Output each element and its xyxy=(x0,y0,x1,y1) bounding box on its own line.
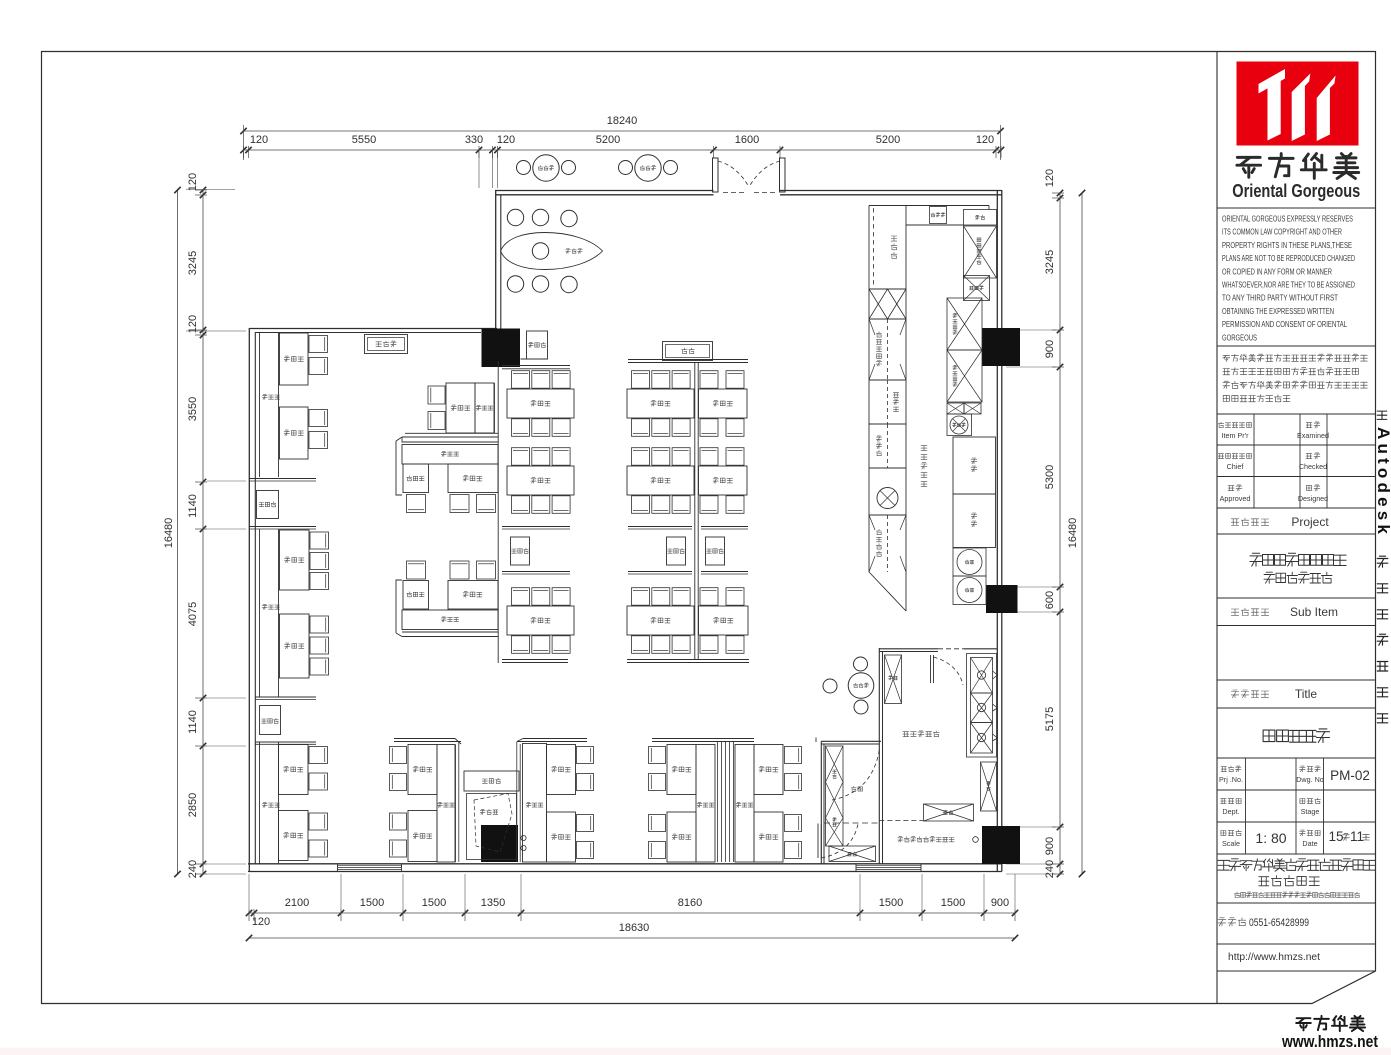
svg-text:GORGEOUS: GORGEOUS xyxy=(1222,333,1257,342)
svg-text:Sub Item: Sub Item xyxy=(1290,605,1338,619)
svg-text:Prj .No.: Prj .No. xyxy=(1219,775,1243,784)
svg-text:Scale: Scale xyxy=(1222,839,1240,848)
svg-text:11: 11 xyxy=(1350,829,1364,844)
svg-text:Stage: Stage xyxy=(1301,807,1320,816)
svg-text:OR COPIED IN ANY FORM OR MANNE: OR COPIED IN ANY FORM OR MANNER xyxy=(1222,267,1332,276)
svg-text:Chief: Chief xyxy=(1227,462,1244,471)
svg-text:2850: 2850 xyxy=(187,793,199,817)
svg-text:3245: 3245 xyxy=(187,251,199,275)
svg-text:5550: 5550 xyxy=(352,134,376,146)
svg-text:330: 330 xyxy=(465,134,483,146)
svg-text:Date: Date xyxy=(1302,839,1317,848)
svg-text:120: 120 xyxy=(187,173,199,191)
svg-text:PERMISSION AND CONSENT OF ORIE: PERMISSION AND CONSENT OF ORIENTAL xyxy=(1222,320,1347,329)
svg-text:5200: 5200 xyxy=(876,134,900,146)
svg-text:Designed: Designed xyxy=(1298,494,1328,503)
svg-text:120: 120 xyxy=(497,134,515,146)
svg-text:www.hmzs.net: www.hmzs.net xyxy=(1281,1032,1378,1051)
svg-text:16480: 16480 xyxy=(1067,518,1079,549)
svg-text:1500: 1500 xyxy=(360,897,384,909)
svg-text:Checked: Checked xyxy=(1299,462,1327,471)
svg-text:120: 120 xyxy=(1044,169,1056,187)
svg-text:Examined: Examined xyxy=(1297,431,1329,440)
svg-text:Autodesk: Autodesk xyxy=(1374,427,1391,538)
svg-text:1140: 1140 xyxy=(187,710,199,734)
svg-text:18630: 18630 xyxy=(619,922,650,934)
svg-text:15: 15 xyxy=(1328,829,1343,844)
svg-text:1500: 1500 xyxy=(941,897,965,909)
svg-text:PROPERTY RIGHTS IN THESE PLANS: PROPERTY RIGHTS IN THESE PLANS,THESE xyxy=(1222,241,1352,250)
svg-text:900: 900 xyxy=(1044,837,1056,855)
svg-text:120: 120 xyxy=(187,315,199,333)
svg-text:PM-02: PM-02 xyxy=(1330,768,1370,783)
svg-text:Project: Project xyxy=(1291,515,1329,529)
svg-text:120: 120 xyxy=(252,916,270,928)
svg-text:1: 80: 1: 80 xyxy=(1255,830,1286,846)
svg-text:WHATSOEVER,NOR ARE THEY TO BE: WHATSOEVER,NOR ARE THEY TO BE ASSIGNED xyxy=(1222,281,1355,290)
svg-text:1140: 1140 xyxy=(187,494,199,518)
svg-text:OBTAINING THE EXPRESSED WRITTE: OBTAINING THE EXPRESSED WRITTEN xyxy=(1222,307,1334,316)
svg-text:120: 120 xyxy=(250,134,268,146)
svg-text:1500: 1500 xyxy=(422,897,446,909)
svg-text:8160: 8160 xyxy=(678,897,702,909)
svg-text:ORIENTAL GORGEOUS EXPRESSLY RE: ORIENTAL GORGEOUS EXPRESSLY RESERVES xyxy=(1222,215,1353,224)
svg-text:18240: 18240 xyxy=(607,115,638,127)
svg-text:5300: 5300 xyxy=(1044,465,1056,489)
svg-text:http://www.hmzs.net: http://www.hmzs.net xyxy=(1228,951,1320,963)
svg-text:16480: 16480 xyxy=(163,518,175,549)
svg-text:Approved: Approved xyxy=(1220,494,1251,503)
svg-text:1350: 1350 xyxy=(481,897,505,909)
svg-text:900: 900 xyxy=(991,897,1009,909)
svg-text:900: 900 xyxy=(1044,340,1056,358)
svg-text:Title: Title xyxy=(1295,687,1318,701)
svg-text:Dwg. No: Dwg. No xyxy=(1296,775,1324,784)
svg-text:Oriental Gorgeous: Oriental Gorgeous xyxy=(1232,180,1360,201)
svg-text:3245: 3245 xyxy=(1044,250,1056,274)
svg-text:600: 600 xyxy=(1044,591,1056,609)
svg-text:240: 240 xyxy=(1044,860,1056,878)
svg-text:0551-65428999: 0551-65428999 xyxy=(1249,917,1309,929)
svg-text:Item Pr'r: Item Pr'r xyxy=(1222,431,1250,440)
svg-text:1600: 1600 xyxy=(735,134,759,146)
svg-text:Dept.: Dept. xyxy=(1222,807,1239,816)
svg-text:5200: 5200 xyxy=(596,134,620,146)
svg-text:4075: 4075 xyxy=(187,602,199,626)
svg-text:2100: 2100 xyxy=(285,897,309,909)
svg-text:240: 240 xyxy=(187,860,199,878)
svg-text:ITS COMMON LAW COPYRIGHT AND O: ITS COMMON LAW COPYRIGHT AND OTHER xyxy=(1222,228,1342,237)
svg-text:5175: 5175 xyxy=(1044,707,1056,731)
svg-text:PLANS ARE NOT TO BE REPRODUCED: PLANS ARE NOT TO BE REPRODUCED CHANGED xyxy=(1222,254,1355,263)
svg-text:3550: 3550 xyxy=(187,397,199,421)
svg-text:1500: 1500 xyxy=(879,897,903,909)
svg-text:TO ANY THIRD PARTY WITHOUT FIR: TO ANY THIRD PARTY WITHOUT FIRST xyxy=(1222,294,1338,303)
svg-text:120: 120 xyxy=(976,134,994,146)
